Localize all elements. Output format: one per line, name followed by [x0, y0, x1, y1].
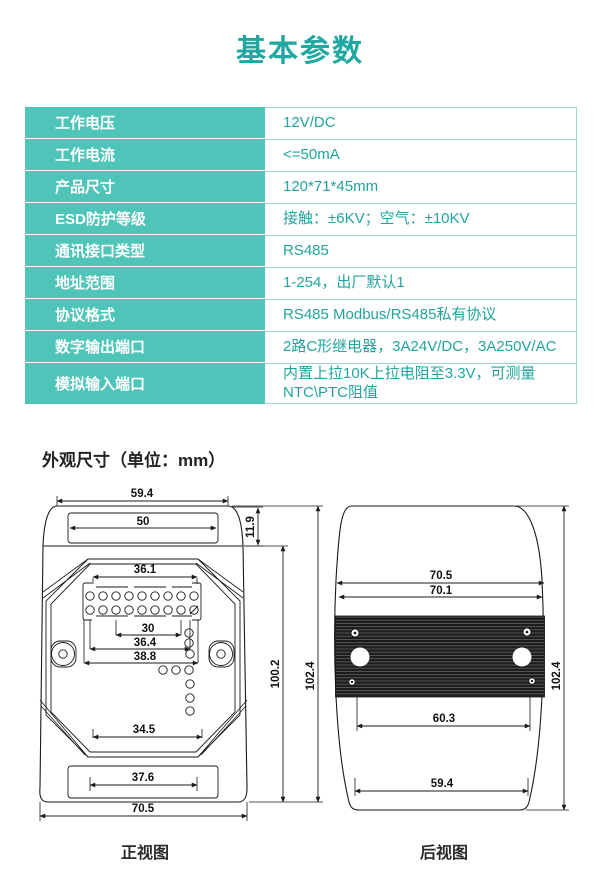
- spec-label: 工作电流: [25, 139, 265, 171]
- spec-value: RS485 Modbus/RS485私有协议: [265, 299, 577, 331]
- spec-row: 协议格式 RS485 Modbus/RS485私有协议: [25, 299, 577, 331]
- spec-row: 通讯接口类型 RS485: [25, 235, 577, 267]
- spec-row: 地址范围 1-254，出厂默认1: [25, 267, 577, 299]
- dim-front-bottom-recess-width: 37.6: [90, 772, 197, 791]
- svg-text:30: 30: [142, 623, 155, 635]
- spec-label: 协议格式: [25, 299, 265, 331]
- svg-text:102.4: 102.4: [305, 661, 317, 690]
- dim-front-terminal-width: 36.1: [93, 564, 197, 584]
- svg-text:59.4: 59.4: [131, 488, 154, 500]
- spec-row: 工作电压 12V/DC: [25, 107, 577, 139]
- svg-text:50: 50: [137, 516, 150, 528]
- svg-text:70.5: 70.5: [430, 570, 453, 582]
- dim-front-top-recess-width: 50: [70, 516, 216, 528]
- svg-text:70.5: 70.5: [132, 803, 155, 815]
- svg-text:36.1: 36.1: [134, 564, 157, 576]
- spec-label: 工作电压: [25, 107, 265, 139]
- svg-text:37.6: 37.6: [132, 772, 154, 784]
- spec-value: 接触：±6KV；空气：±10KV: [265, 203, 577, 235]
- dim-front-total-height: 102.4: [232, 506, 323, 802]
- spec-value: 内置上拉10K上拉电阻至3.3V，可测量NTC\PTC阻值: [265, 363, 577, 404]
- spec-row: 模拟输入端口 内置上拉10K上拉电阻至3.3V，可测量NTC\PTC阻值: [25, 363, 577, 404]
- svg-text:60.3: 60.3: [433, 713, 455, 725]
- dim-front-pin-row-width: 30: [116, 620, 181, 635]
- dim-back-upper-width-outer: 70.5: [337, 570, 544, 583]
- svg-text:100.2: 100.2: [270, 660, 282, 689]
- dim-front-inner-width-1: 36.4: [90, 620, 190, 649]
- spec-table: 工作电压 12V/DC 工作电流 <=50mA 产品尺寸 120*71*45mm…: [25, 107, 577, 404]
- dim-back-bottom-width: 59.4: [355, 778, 528, 796]
- back-view-caption: 后视图: [420, 843, 468, 862]
- dim-front-bottom-width: 70.5: [40, 802, 247, 821]
- svg-text:59.4: 59.4: [431, 778, 454, 790]
- terminal-holes-row-2: [86, 606, 198, 614]
- dim-front-top-width: 59.4: [57, 488, 228, 506]
- spec-label: ESD防护等级: [25, 203, 265, 235]
- front-mounting-ear-left: [51, 641, 76, 667]
- page-title: 基本参数: [0, 26, 600, 70]
- spec-row: 数字输出端口 2路C形继电器，3A24V/DC，3A250V/AC: [25, 331, 577, 363]
- front-view-drawing: 59.4 50 11.9 36.1 30 36.4 3: [40, 488, 323, 862]
- terminal-holes-row-1: [86, 592, 198, 600]
- spec-value: RS485: [265, 235, 577, 267]
- spec-value: <=50mA: [265, 139, 577, 171]
- spec-value: 120*71*45mm: [265, 171, 577, 203]
- front-mounting-ear-right: [209, 641, 234, 667]
- spec-value: 1-254，出厂默认1: [265, 267, 577, 299]
- spec-row: ESD防护等级 接触：±6KV；空气：±10KV: [25, 203, 577, 235]
- front-terminal-block: [83, 583, 201, 620]
- spec-value: 2路C形继电器，3A24V/DC，3A250V/AC: [265, 331, 577, 363]
- dim-front-lower-inner-width: 34.5: [93, 724, 202, 738]
- svg-text:34.5: 34.5: [133, 724, 156, 736]
- svg-text:36.4: 36.4: [134, 637, 157, 649]
- spec-row: 产品尺寸 120*71*45mm: [25, 171, 577, 203]
- svg-text:38.8: 38.8: [134, 651, 157, 663]
- spec-label: 模拟输入端口: [25, 363, 265, 404]
- back-view-drawing: 70.5 70.1 60.3 59.4 102.4 后视图: [335, 506, 569, 862]
- section-title: 外观尺寸（单位：mm）: [42, 446, 225, 471]
- spec-label: 数字输出端口: [25, 331, 265, 363]
- spec-label: 产品尺寸: [25, 171, 265, 203]
- svg-text:70.1: 70.1: [430, 585, 453, 597]
- dimension-drawings: 59.4 50 11.9 36.1 30 36.4 3: [0, 480, 600, 880]
- spec-label: 通讯接口类型: [25, 235, 265, 267]
- dim-back-rail-width: 60.3: [357, 697, 530, 731]
- front-vent-holes: [159, 629, 194, 715]
- spec-value: 12V/DC: [265, 107, 577, 139]
- svg-text:11.9: 11.9: [245, 516, 257, 538]
- front-view-caption: 正视图: [121, 843, 169, 862]
- spec-row: 工作电流 <=50mA: [25, 139, 577, 171]
- svg-text:102.4: 102.4: [551, 661, 563, 690]
- dim-back-upper-width-inner: 70.1: [339, 585, 542, 597]
- spec-label: 地址范围: [25, 267, 265, 299]
